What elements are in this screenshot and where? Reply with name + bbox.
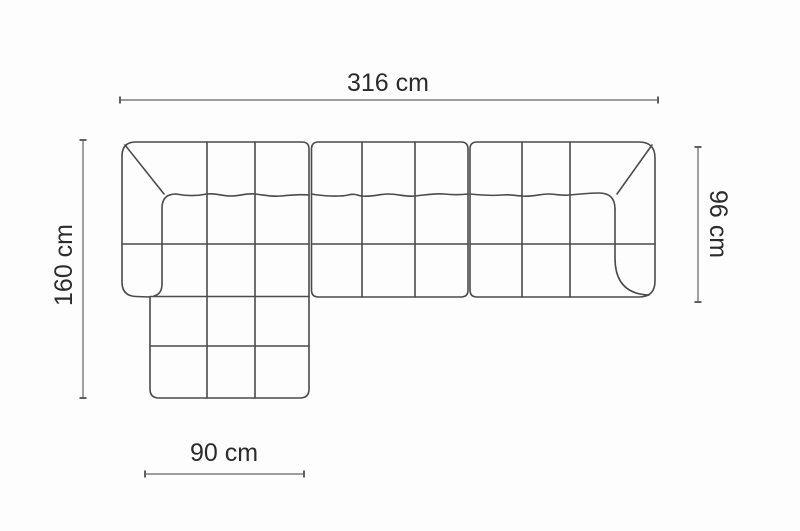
- dim-label-body-depth: 96 cm: [704, 190, 732, 258]
- dim-label-chaise-width: 90 cm: [190, 439, 258, 467]
- sofa-backrest-line-right: [470, 193, 615, 209]
- diagram-canvas: 316 cm 160 cm 96 cm 90 cm: [0, 0, 800, 531]
- sofa-left-corner-diagonal: [125, 145, 164, 194]
- dim-label-total-width: 316 cm: [347, 69, 429, 97]
- sofa-left-armrest-inner-edge: [154, 194, 176, 296]
- sofa-corner-module-outline: [122, 142, 309, 398]
- dimension-lines: [83, 100, 698, 474]
- sofa-right-corner-diagonal: [617, 145, 652, 194]
- sofa-backrest-line-middle: [312, 194, 469, 196]
- sofa-drawing: [122, 142, 655, 398]
- dim-label-total-depth: 160 cm: [50, 224, 78, 306]
- dimension-ticks: [80, 97, 702, 478]
- sofa-middle-module-outline: [312, 142, 469, 297]
- sofa-dimension-diagram: 316 cm 160 cm 96 cm 90 cm: [0, 0, 800, 531]
- sofa-backrest-line-left: [176, 194, 309, 196]
- sofa-right-armrest-inner-edge: [615, 209, 649, 295]
- sofa-right-module-outline: [470, 142, 655, 297]
